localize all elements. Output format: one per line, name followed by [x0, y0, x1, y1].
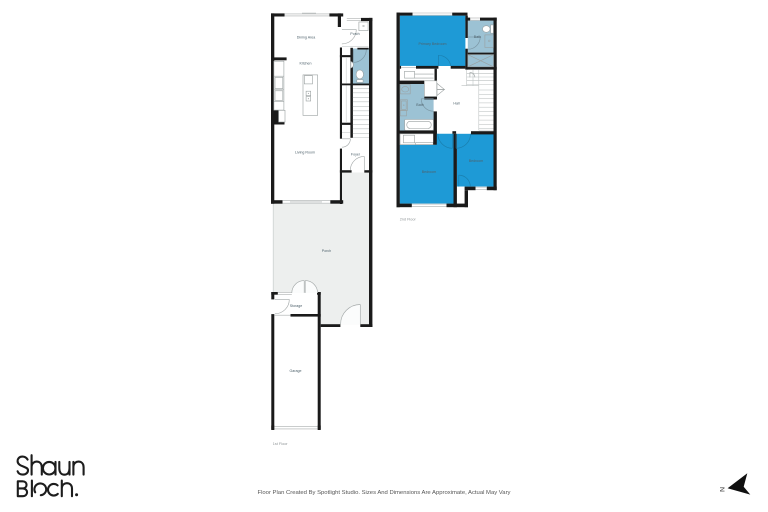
svg-text:Bath: Bath — [416, 103, 423, 107]
svg-text:Bedroom: Bedroom — [422, 170, 437, 174]
svg-text:Storage: Storage — [290, 304, 303, 308]
svg-text:Hall: Hall — [453, 101, 459, 105]
svg-text:Living Room: Living Room — [295, 150, 315, 154]
svg-text:N: N — [720, 487, 727, 492]
svg-text:Bath: Bath — [474, 35, 481, 39]
svg-text:Primary Bedroom: Primary Bedroom — [419, 42, 447, 46]
svg-text:Dining Area: Dining Area — [297, 35, 316, 39]
svg-text:Foyer: Foyer — [351, 153, 361, 157]
svg-text:Bedroom: Bedroom — [469, 159, 484, 163]
svg-text:1st Floor: 1st Floor — [273, 442, 289, 446]
svg-text:Porch: Porch — [322, 249, 331, 253]
svg-text:Porch: Porch — [350, 32, 359, 36]
svg-text:2nd Floor: 2nd Floor — [400, 218, 417, 222]
svg-text:Floor Plan Created By Spotligh: Floor Plan Created By Spotlight Studio. … — [258, 490, 511, 496]
svg-text:Garage: Garage — [290, 369, 302, 373]
svg-text:Kitchen: Kitchen — [300, 61, 312, 65]
